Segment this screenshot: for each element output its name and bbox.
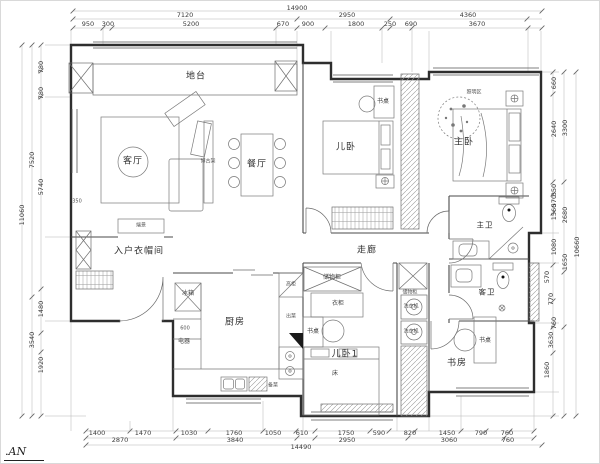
dimension-label: 2680 — [562, 207, 569, 224]
dimension-label: 3300 — [562, 120, 569, 137]
dimension-label: 950 — [82, 21, 94, 28]
dimension-label: 3540 — [29, 332, 36, 349]
sheet-title-underline — [4, 460, 44, 461]
room-label: 出菜 — [286, 315, 296, 320]
dimension-label: 1400 — [89, 430, 106, 437]
room-label: 350 — [72, 200, 82, 205]
dimension-label: 7520 — [29, 152, 36, 169]
dimension-label: 1080 — [551, 239, 558, 256]
dimension-label: 780 — [38, 87, 45, 99]
dimension-label: 1050 — [265, 430, 282, 437]
room-label: 书房 — [447, 360, 467, 369]
dimension-label: 2870 — [112, 437, 129, 444]
room-label: 储物柜 — [323, 275, 341, 281]
dimension-label: 610 — [296, 430, 308, 437]
dimension-label: 3670 — [469, 21, 486, 28]
room-label: 客卫 — [479, 288, 496, 296]
room-label: 厨房 — [225, 319, 245, 328]
dimension-label: 4360 — [460, 12, 477, 19]
dimension-label: 1920 — [38, 357, 45, 374]
dimension-label: 690 — [405, 21, 417, 28]
room-label: 餐厅 — [247, 161, 267, 170]
room-label: 走廊 — [357, 247, 377, 256]
dimension-label: 1650 — [562, 254, 569, 271]
dimension-label: 1470 — [135, 430, 152, 437]
dimension-label: 1030 — [181, 430, 198, 437]
dimension-label: 820 — [404, 430, 416, 437]
dimension-label: 900 — [302, 21, 314, 28]
dimension-label: 2640 — [551, 121, 558, 138]
room-label: 600 — [180, 327, 190, 332]
room-label: 主卧 — [454, 139, 474, 148]
room-label: 书桌 — [377, 99, 389, 105]
room-label: 洗衣机 — [403, 330, 418, 335]
room-label: 博古架 — [200, 160, 215, 165]
dimension-label: 7120 — [177, 12, 194, 19]
dimension-label: 590 — [373, 430, 385, 437]
room-label: 书桌 — [479, 338, 491, 344]
dimension-label: 790 — [475, 430, 487, 437]
dimension-label: 3840 — [227, 437, 244, 444]
sheet-title: .AN — [5, 445, 26, 458]
room-label: 高柜 — [286, 283, 296, 288]
dimension-label: 250 — [384, 21, 396, 28]
floor-plan-sheet: 1490071202950436095030052006709001800250… — [0, 0, 600, 464]
dimension-label: 300 — [102, 21, 114, 28]
room-label: 备菜 — [268, 384, 278, 389]
dimension-label: 660 — [551, 77, 558, 89]
dimension-label: 770 — [548, 293, 555, 305]
dimension-label: 760 — [502, 437, 514, 444]
room-label: 客厅 — [123, 158, 143, 167]
room-label: 冰箱 — [182, 291, 194, 297]
dimension-label: 1560 — [551, 204, 558, 221]
dimension-label: 760 — [551, 317, 558, 329]
room-label: 儿卧1 — [332, 351, 359, 360]
dimension-label: 670 — [277, 21, 289, 28]
dimension-label: 11060 — [19, 205, 26, 226]
room-label: 衣柜 — [332, 301, 344, 307]
dimension-label: 5740 — [38, 179, 45, 196]
room-label: 地台 — [186, 73, 206, 82]
dimension-label: 10660 — [574, 237, 581, 258]
dimension-label: 14900 — [287, 5, 308, 12]
room-label: 电器 — [178, 339, 190, 345]
room-label: 主卫 — [477, 221, 494, 229]
dimension-label: 780 — [38, 61, 45, 73]
dimension-label: 570 — [544, 271, 551, 283]
room-label: 储物柜 — [402, 291, 417, 296]
room-label: 儿卧 — [336, 144, 356, 153]
label-layer: 1490071202950436095030052006709001800250… — [1, 1, 600, 464]
dimension-label: 1800 — [348, 21, 365, 28]
dimension-label: 14490 — [291, 444, 312, 451]
room-label: 端景 — [136, 224, 146, 229]
dimension-label: 1480 — [38, 301, 45, 318]
room-label: 洗衣机 — [403, 305, 418, 310]
dimension-label: 5200 — [183, 21, 200, 28]
dimension-label: 2950 — [339, 437, 356, 444]
room-label: 床 — [332, 371, 338, 377]
dimension-label: 3060 — [441, 437, 458, 444]
room-label: 入户衣帽间 — [114, 248, 164, 257]
dimension-label: 2950 — [339, 12, 356, 19]
room-label: 书桌 — [307, 329, 319, 335]
room-label: 照明区 — [466, 91, 481, 96]
dimension-label: 1860 — [544, 362, 551, 379]
dimension-label: 3630 — [548, 332, 555, 349]
